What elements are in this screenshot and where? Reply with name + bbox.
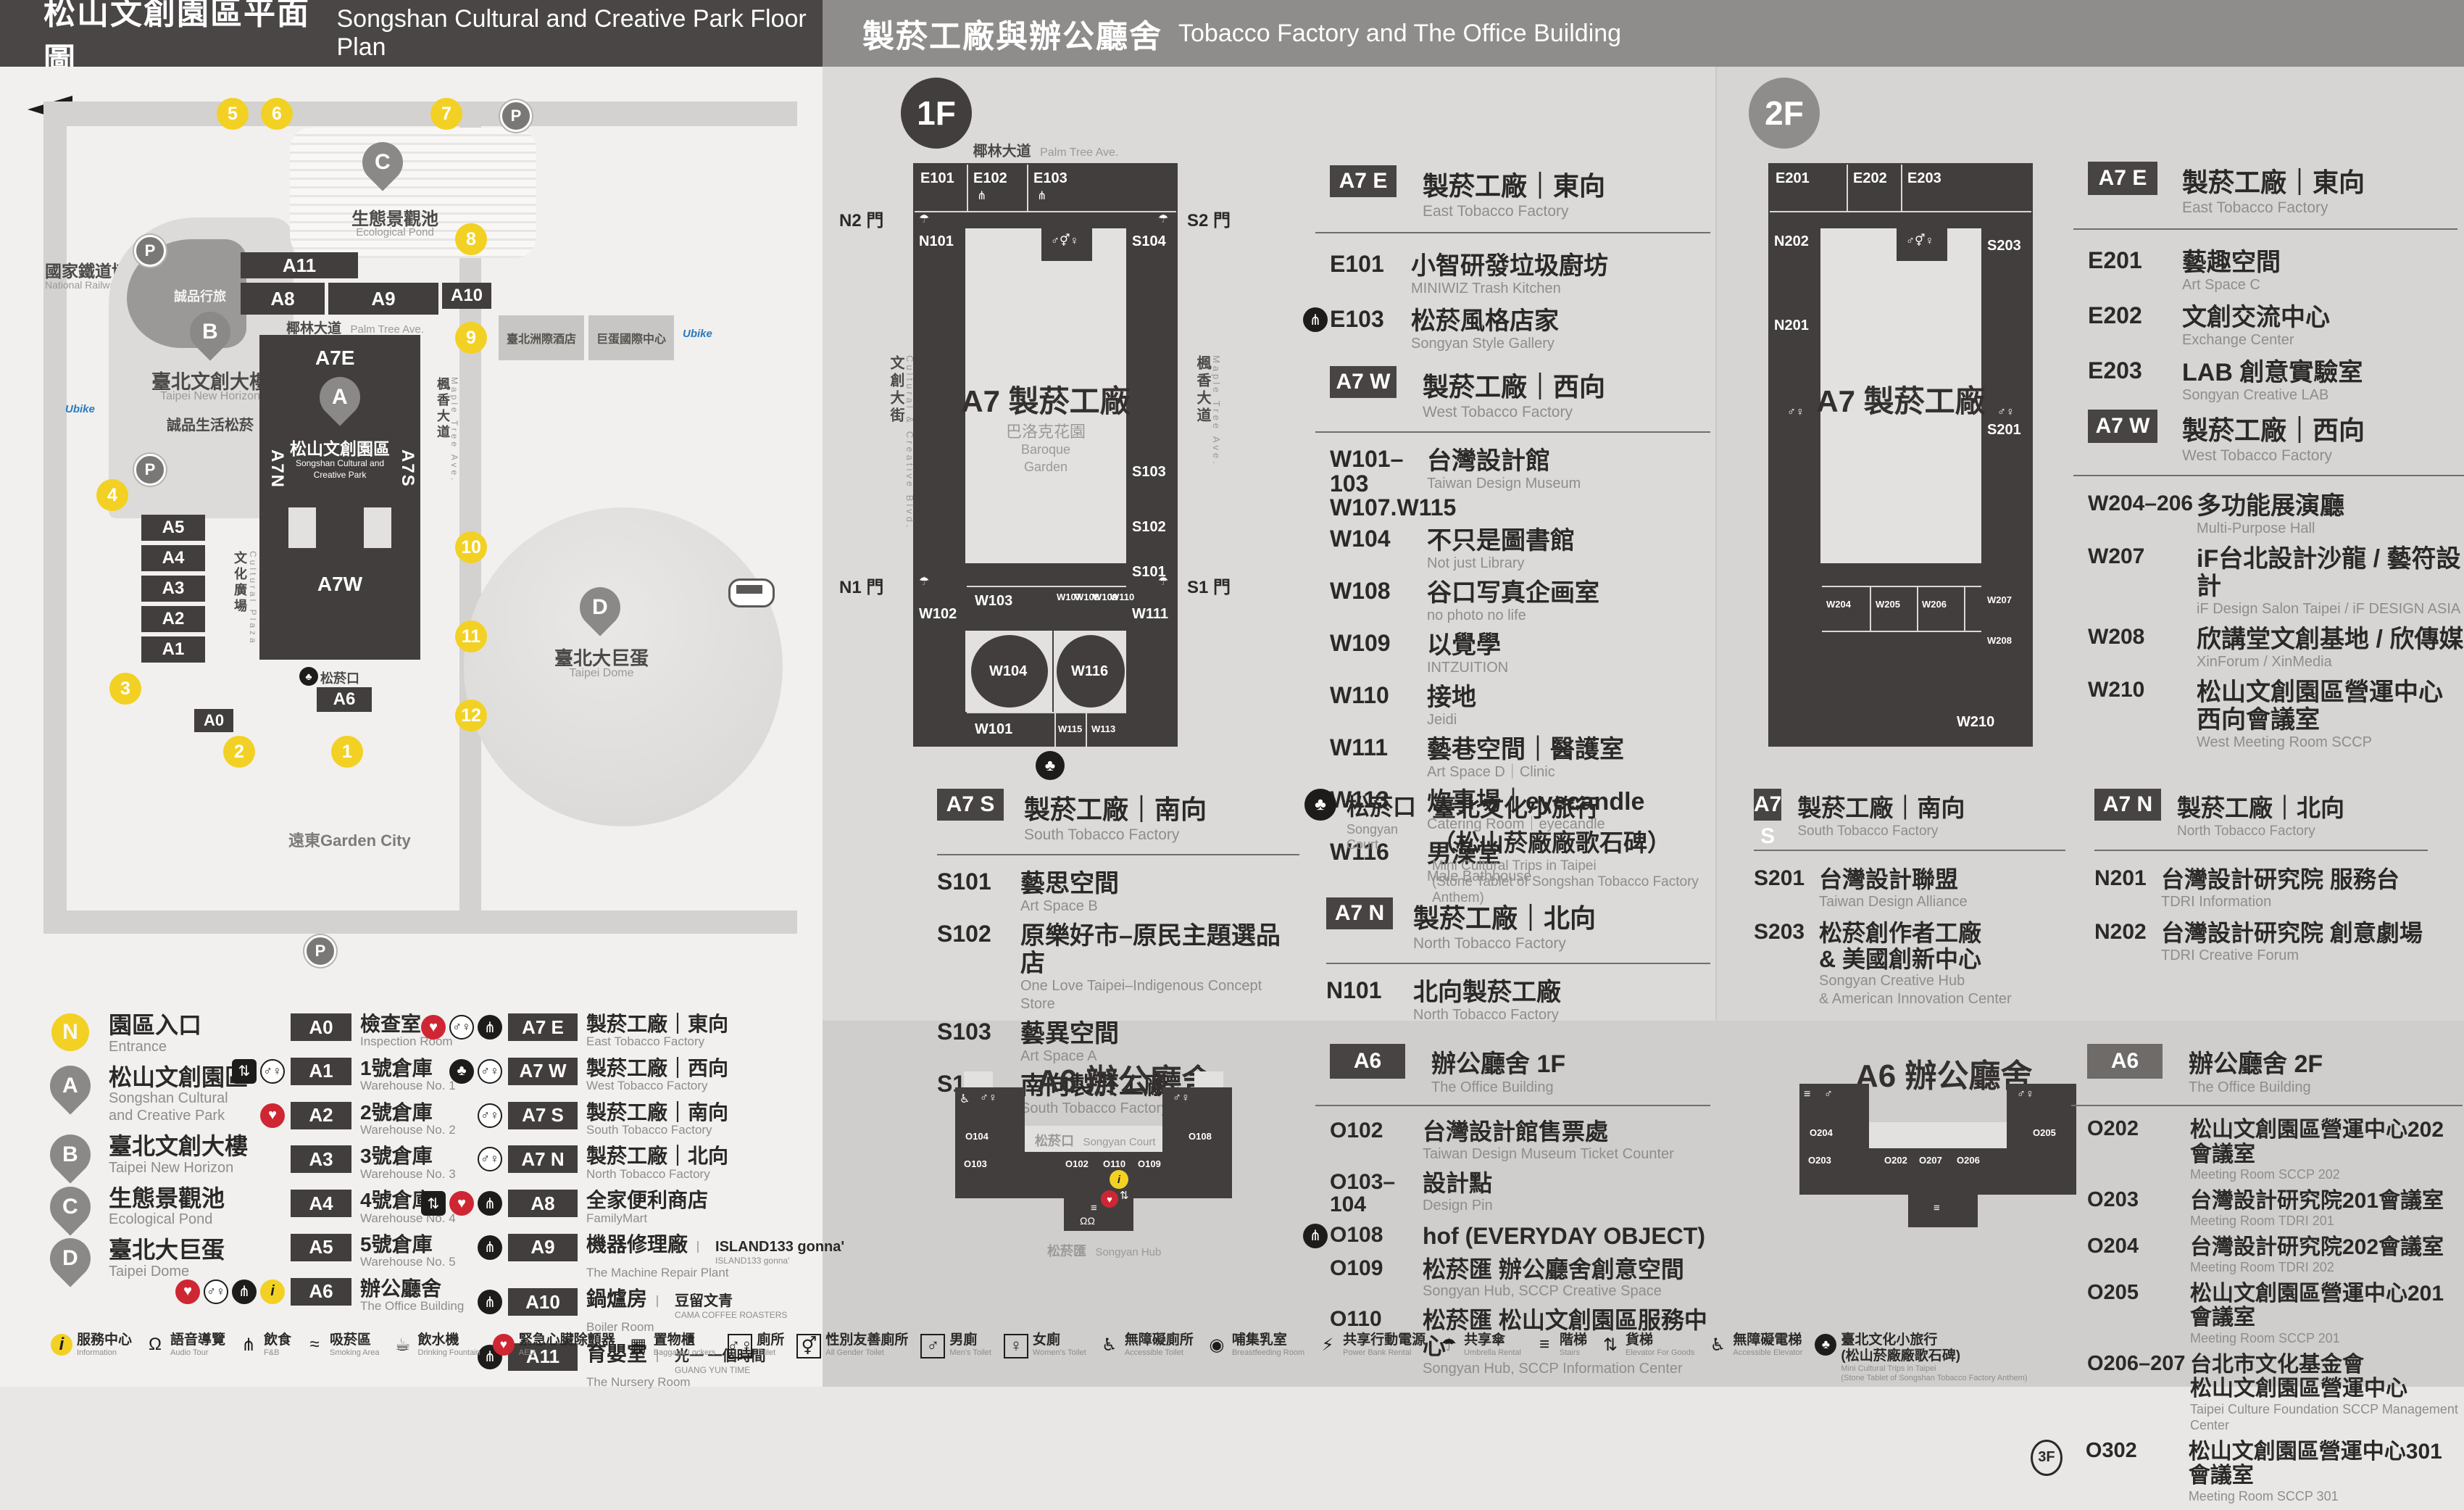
pin-marker: A [41,1057,99,1114]
header-right: 製菸工廠與辦公廳舍 Tobacco Factory and The Office… [823,0,2464,67]
room-sep [915,211,1176,212]
section-2f-a7s: A7 S 製菸工廠｜南向 South Tobacco Factory S201 … [1754,789,1931,1018]
room-listing: O109 松菸匯 辦公廳舍創意空間Songyan Hub, SCCP Creat… [1315,1257,1710,1301]
court-item-zh2: （松山菸廠廠歌石碑） [1432,824,1710,858]
room-listing: W109 以覺學INTZUITION [1315,631,1710,677]
footer-item: ♣ 臺北文化小旅行 (松山菸廠廠歌石碑) Mini Cultural Trips… [1815,1332,2027,1384]
legend-badge: A4 [291,1190,351,1217]
room-o204: O204 [1810,1127,1833,1138]
baggage-lockers-icon: ▦ [628,1334,649,1356]
badge-a7s-2f: A7 S [1754,789,1781,821]
toilet-icon: ♂♀ [1787,406,1805,419]
stop-7: 7 [430,98,462,130]
road-bottom [43,910,797,934]
breastfeeding-room-icon: ◉ [1206,1334,1228,1356]
footer-item: ♿ 無障礙電梯 Accessible Elevator [1707,1332,1802,1358]
court-item-zh1: 臺北文化小旅行 [1432,789,1710,824]
room-w103: W103 [975,593,1012,610]
legend-row-icons [185,1234,285,1235]
street-ccblvd-en: Cultural & Creative Blvd. [904,355,915,531]
room-e101: E101 [920,170,954,187]
room-listing: O203 台灣設計研究院201會議室Meeting Room TDRI 201 [2071,1189,2463,1229]
badge-a7s: A7 S [937,789,1004,821]
room-sep [967,586,1126,587]
footer-icon-legend: i 服務中心 Information Ω 語音導覽 Audio Tour ⋔ 飲… [51,1332,2413,1384]
room-s103: S103 [1132,464,1166,481]
footer-item: Ω 語音導覽 Audio Tour [144,1332,225,1358]
room-sep [1917,587,1918,631]
audio-tour-icon: ΩΩ [1080,1215,1095,1227]
gate-s1: S1 門 [1187,573,1231,598]
section-2f-a7e: A7 E 製菸工廠｜東向 East Tobacco Factory E201 藝… [2073,162,2457,414]
information-icon: i [260,1279,285,1304]
legend-badge: A2 [291,1102,351,1129]
office1f-title-zh: 辦公廳舍 1F [1431,1044,1565,1079]
sec-title-zh: 製菸工廠｜西向 [2182,410,2365,447]
map-courtyard-slit [288,507,316,548]
legend-row-icons [185,1013,285,1015]
room-sep [1027,165,1028,211]
street-ccblvd-zh: 文創大街 [886,355,907,425]
legend-badge: A1 [291,1058,351,1085]
parking-icon: P [134,235,166,267]
eslite-store-label: 誠品生活松菸 [167,413,254,434]
stairs-icon: ≡ [1804,1088,1810,1101]
umbrella-icon: ☂ [919,212,929,226]
court-item-en1: Mini Cultural Trips in Taipei [1432,858,1710,874]
room-listing: O102 台灣設計館售票處Taiwan Design Museum Ticket… [1315,1119,1710,1163]
cultural-plaza-label-en: Cultural Plaza [248,551,258,646]
footer-item: ⚡ 共享行動電源 Power Bank Rental [1317,1332,1425,1358]
songyan-court-icon: ♣ [1036,751,1065,780]
toilet-icon: ♂♀ [478,1059,502,1084]
legend-row-icons: ♣♂♀ [402,1058,502,1084]
toilet-icon: ♂♀ [2017,1088,2034,1101]
map-a-label-en1: Songshan Cultural and [296,458,384,468]
building-a6: A6 [317,687,372,712]
eslite-hotel-label: 誠品行旅 [174,286,226,305]
accessible-elevator-icon: ♿ [1707,1334,1728,1356]
header-left: 松山文創園區平面圖 Songshan Cultural and Creative… [0,0,823,67]
cultural-plaza-label: 文化廣場 [230,551,249,615]
building-a2: A2 [141,606,205,632]
room-sep [1870,587,1871,631]
footer-item: i 服務中心 Information [51,1332,132,1358]
aed-icon: ♥ [493,1334,515,1356]
office-2f-listing: A6 辦公廳舍 2F The Office Building O202 松山文創… [2071,1044,2463,1510]
songyan-court-icon: ♣ [1304,789,1336,821]
aed-icon: ♥ [449,1191,474,1216]
room-w101: W101 [975,721,1012,738]
badge-a7w-2f: A7 W [2088,410,2157,443]
room-w206: W206 [1922,599,1947,610]
footer-item: ▦ 置物櫃 Baggage Lockers [628,1332,716,1358]
map-a7w-label: A7W [317,573,362,596]
room-w204: W204 [1826,599,1851,610]
room-o109: O109 [1138,1158,1161,1169]
room-o203: O203 [1808,1155,1831,1166]
listing-icons: ⋔ [1299,307,1330,353]
footer-item: ☂ 共享傘 Umbrella Rental [1438,1332,1521,1358]
sec-title-en: North Tobacco Factory [1413,935,1566,952]
sec-title-en: East Tobacco Factory [1423,203,1569,220]
footer-item: ⇅ 貨梯 Elevator For Goods [1599,1332,1694,1358]
page-title-en: Songshan Cultural and Creative Park Floo… [337,5,823,62]
ubike-logo: Ubike [683,328,712,340]
listing-icons [1299,1119,1330,1163]
room-listing: E203 LAB 創意實驗室Songyan Creative LAB [2073,359,2457,405]
room-sep [1964,587,1965,631]
room-o110: O110 [1103,1158,1125,1169]
stairs-icon: ≡ [1533,1334,1555,1356]
umbrella-icon: ☂ [1158,212,1168,226]
room-w115: W115 [1058,723,1082,734]
section-1f-a7n: A7 N 製菸工廠｜北向 North Tobacco Factory N101 … [1326,897,1710,1034]
room-o205: O205 [2033,1127,2056,1138]
baroque-garden-en2: Garden [1024,460,1067,475]
baroque-garden-en1: Baroque [1021,442,1070,457]
room-o207: O207 [1919,1155,1942,1166]
legend-row-icons: ♥♂♀⋔ [402,1013,502,1040]
sec-title-zh: 製菸工廠｜北向 [2177,789,2344,824]
womens-toilet-icon: ♀ [1004,1334,1028,1358]
entrance-marker: N [51,1013,89,1051]
office1f-hub-label: 松菸匯 Songyan Hub [1047,1241,1161,1260]
office2f-plan-title: A6 辦公廳舍 [1855,1050,2032,1096]
room-sep [1086,713,1087,747]
aed-icon: ♥ [421,1015,446,1040]
intercontinental-hotel-box: 臺北洲際酒店 [499,315,584,360]
legend-badge: A5 [291,1234,351,1261]
room-listing: S102 原樂好市–原民主題選品店One Love Taipei–Indigen… [937,922,1299,1013]
footer-item: ♂♀ 廁所 Toilet [728,1332,784,1358]
building-a9: A9 [328,283,438,315]
all-gender-toilet-icon: ⚥ [796,1334,821,1358]
elevator-icon: ⇅ [421,1191,446,1216]
room-w205: W205 [1876,599,1900,610]
palm-tree-ave-label: 椰林大道 Palm Tree Ave. [286,318,424,337]
ubike-logo: Ubike [65,403,95,415]
sec-title-en: South Tobacco Factory [1024,826,1179,843]
room-w104: W104 [989,663,1027,680]
footer-item: ☕ 飲水機 Drinking Fountain [392,1332,480,1358]
gate-n1: N1 門 [839,573,883,598]
legend-row-icons: ⋔ [402,1288,502,1314]
listing-icons [1299,1171,1330,1216]
audio-tour-icon: Ω [144,1334,166,1356]
room-o202: O202 [1884,1155,1907,1166]
elevator-for-goods-icon: ⇅ [1599,1334,1621,1356]
room-s104: S104 [1132,233,1166,250]
fnb-icon: ⋔ [238,1334,259,1356]
aed-icon: ♥ [1101,1190,1118,1208]
room-listing: N101 北向製菸工廠North Tobacco Factory [1326,979,1710,1024]
legend-factory-row: ♂♀ A7 S 製菸工廠｜南向 South Tobacco Factory [402,1102,808,1138]
building-a0: A0 [194,709,233,732]
legend-row-icons: ⇅♥⋔ [402,1190,502,1216]
pond-label-en: Ecological Pond [356,226,434,238]
office1f-court-label: 松菸口 Songyan Court [1035,1131,1156,1150]
footer-item: ⋔ 飲食 F&B [238,1332,291,1358]
room-w102: W102 [919,606,957,623]
legend-badge: A7 S [508,1102,578,1129]
fnb-icon: ⋔ [1303,307,1328,332]
badge-a6-2f: A6 [2087,1044,2163,1079]
legend-factory-row: ⋔ A9 機器修理廠 ｜ISLAND133 gonna'ISLAND133 go… [402,1234,808,1280]
stairs-icon: ≡ [1091,1202,1097,1214]
power-bank-rental-icon: ⚡ [1317,1334,1339,1356]
office2f-notch [1869,1122,2007,1148]
legend-badge: A7 E [508,1013,578,1041]
room-listing: S203 松菸創作者工廠& 美國創新中心Songyan Creative Hub… [1754,921,1931,1009]
map-a7n-label: A7N [267,449,287,489]
fnb-icon: ⋔ [478,1015,502,1040]
room-sep [1901,165,1902,211]
toilet-icon: ♂♀ [478,1103,502,1128]
fnb-icon: ⋔ [478,1290,502,1314]
room-o206: O206 [1957,1155,1980,1166]
badge-a6-1f: A6 [1330,1044,1405,1079]
map-a7s-label: A7S [397,449,417,488]
legend-factory-row: ♥♂♀⋔ A7 E 製菸工廠｜東向 East Tobacco Factory [402,1013,808,1050]
legend-row-icons: ⇅♂♀ [185,1058,285,1084]
toilet-icon: ♂♀ [1997,406,2015,419]
badge-a7e-2f: A7 E [2088,162,2157,195]
map-courtyard-slit [364,507,391,548]
map-a7e-label: A7E [315,347,354,370]
office2f-stem [1908,1195,1978,1227]
b-label-en: Taipei New Horizon [160,390,260,403]
footer-item: ≈ 吸菸區 Smoking Area [304,1332,379,1358]
fnb-icon: ⋔ [232,1279,257,1304]
stop-12: 12 [455,700,487,731]
room-o103: O103 [964,1158,987,1169]
legend-row-icons [185,1190,285,1191]
room-listing: N201 台灣設計研究院 服務台TDRI Information [2094,867,2457,911]
room-w111: W111 [1132,606,1168,623]
room-listing: E101 小智研發垃圾廚坊MINIWIZ Trash Kitchen [1315,252,1710,298]
sec-title-zh: 製菸工廠｜東向 [2182,162,2365,199]
legend-row-icons: ♂♀ [402,1145,502,1171]
room-s203: S203 [1987,238,2021,254]
room-listing: ⋔ E103 松菸風格店家Songyan Style Gallery [1315,307,1710,353]
room-listing: W108 谷口写真企画室no photo no life [1315,579,1710,625]
office2f-title-zh: 辦公廳舍 2F [2189,1044,2323,1079]
room-listing: O202 松山文創園區營運中心202會議室Meeting Room SCCP 2… [2071,1118,2463,1183]
stop-10: 10 [455,531,487,563]
stop-4: 4 [96,479,128,511]
footer-item: ♥ 緊急心臟除顫器 AED [493,1332,615,1358]
room-s102: S102 [1132,519,1166,536]
sec-title-en: North Tobacco Factory [2177,824,2315,839]
fnb-icon: ⋔ [1303,1224,1328,1248]
toilet-icon: ♂♀ [1173,1092,1190,1105]
fnb-icon: ⋔ [977,188,986,203]
room-n101: N101 [919,233,954,250]
stop-8: 8 [455,223,487,255]
ecological-pond-shape [290,128,536,258]
map-a-label-zh: 松山文創園區 [290,435,390,460]
toilet-icon: ♂♀ [980,1092,997,1105]
building-a5: A5 [141,515,205,541]
legend-badge: A9 [508,1234,578,1261]
panel-divider [1715,67,1717,1021]
street-palm-label: 椰林大道 Palm Tree Ave. [973,139,1119,160]
building-a11: A11 [241,252,358,278]
floor1-badge: 1F [901,78,972,149]
room-listing: N202 台灣設計研究院 創意劇場TDRI Creative Forum [2094,921,2457,965]
sec-title-zh: 製菸工廠｜東向 [1423,165,1605,203]
building-a3: A3 [141,576,205,602]
street-maple-en: Maple Tree Ave. [1211,355,1222,467]
office1f-title-en: The Office Building [1431,1079,1554,1095]
badge-a7e: A7 E [1330,165,1397,197]
gate-n2: N2 門 [839,206,883,231]
fnb-icon: ⋔ [1037,188,1046,203]
mens-toilet-icon: ♂ [920,1334,945,1358]
elevator-icon: ⇅ [232,1059,257,1084]
room-listing: S201 台灣設計聯盟Taiwan Design Alliance [1754,867,1931,911]
court-icon: ♣ [449,1059,474,1084]
gate-s2: S2 門 [1187,206,1231,231]
listing-icons [1299,252,1330,298]
stop-1: 1 [331,736,363,768]
room-w207: W207 [1987,594,2012,605]
office1f-stem [1064,1198,1133,1231]
room-w208: W208 [1987,635,2012,646]
street-maple-zh: 楓香大道 [1192,355,1213,425]
stair-slab [964,1071,993,1089]
songyan-court-icon: ♣ [299,667,318,686]
building-a8: A8 [241,283,325,315]
room-n202: N202 [1774,233,1809,250]
room-listing: W210 松山文創園區營運中心西向會議室West Meeting Room SC… [2073,679,2464,752]
dome-label-en: Taipei Dome [570,667,634,680]
room-listing: O204 台灣設計研究院202會議室Meeting Room TDRI 202 [2071,1235,2463,1276]
room-sep [1054,713,1056,747]
badge-a7w: A7 W [1330,366,1397,398]
court-zh: 松菸口 [1347,789,1432,822]
map-court-label: 松菸口 [320,668,359,687]
toilet-icon: ♂♀ [478,1147,502,1171]
footer-item: ♿ 無障礙廁所 Accessible Toilet [1099,1332,1194,1358]
sec-title-zh: 製菸工廠｜南向 [1024,789,1207,826]
legend-factory-row: ⇅♥⋔ A8 全家便利商店 FamilyMart [402,1190,808,1226]
stair-slab [1194,1071,1223,1089]
office2f-title-en: The Office Building [2189,1079,2311,1095]
maple-ave-label-en: Maple Tree Ave. [449,377,459,484]
sec-title-zh: 製菸工廠｜西向 [1423,366,1605,404]
stop-6: 6 [261,98,293,130]
legend-badge: A6 [291,1278,351,1306]
room-sep [1822,631,1981,632]
room-e203: E203 [1907,170,1941,187]
parking-icon: P [500,100,532,132]
floor-prefix-badge: 3F [2031,1440,2063,1476]
mini-cultural-trips-icon: ♣ [1815,1334,1836,1356]
toilet-icon: ♂♀ [449,1015,474,1040]
room-sep [1770,211,2031,212]
badge-a7n-2f: A7 N [2094,789,2161,821]
legend-factory-row: ⋔ A10 鍋爐房 ｜豆留文青CAMA COFFEE ROASTERS Boil… [402,1288,808,1335]
umbrella-rental-icon: ☂ [1438,1334,1460,1356]
fnb-icon: ⋔ [478,1235,502,1260]
accessible-toilet-icon: ♿ [1099,1334,1120,1356]
baroque-garden-zh: 巴洛克花園 [1006,419,1086,442]
legend-row-icons: ♥ [185,1102,285,1128]
room-sep [967,712,1126,713]
room-listing: 3F O302 松山文創園區營運中心301會議室Meeting Room SCC… [2071,1440,2463,1505]
map-a-label-en2: Creative Park [314,470,367,480]
road-top [43,101,797,126]
legend-badge: A7 N [508,1145,578,1173]
footer-item: ◉ 哺集乳室 Breastfeeding Room [1206,1332,1304,1358]
section-title-en: Tobacco Factory and The Office Building [1178,20,1621,48]
section-2f-a7n: A7 N 製菸工廠｜北向 North Tobacco Factory N201 … [2094,789,2457,974]
room-listing: W207 iF台北設計沙龍 / 藝符設計iF Design Salon Taip… [2073,545,2464,618]
plan1-center-title: A7 製菸工廠 [961,377,1130,421]
legend-factory-row: ♂♀ A7 N 製菸工廠｜北向 North Tobacco Factory [402,1145,808,1182]
sec-title-zh: 製菸工廠｜北向 [1413,897,1596,935]
stairs-icon: ≡ [1934,1202,1940,1214]
road-left [43,126,67,910]
stop-5: 5 [217,98,249,130]
toilet-icon: ♂ [1824,1088,1833,1101]
information-icon: i [51,1334,72,1356]
legend-row-icons: ⋔ [402,1234,502,1260]
listing-icons [1299,1257,1330,1301]
bus-stop-icon [728,578,775,607]
court-en: Songyan Court [1347,822,1398,852]
room-listing: W111 藝巷空間｜醫護室Art Space D｜Clinic [1315,736,1710,781]
section-2f-a7w: A7 W 製菸工廠｜西向 West Tobacco Factory W204–2… [2073,410,2464,759]
legend-badge: A3 [291,1145,351,1173]
legend-badge: A7 W [508,1058,578,1085]
stop-11: 11 [455,621,487,652]
room-listing: W104 不只是圖書館Not just Library [1315,527,1710,573]
legend-badge: A8 [508,1190,578,1217]
building-a10: A10 [442,283,491,309]
room-w110: W110 [1110,592,1134,602]
room-listing: S101 藝思空間Art Space B [937,870,1299,916]
pin-marker: B [41,1127,99,1184]
parking-icon: P [134,454,166,486]
legend-row-icons: ♂♀ [402,1102,502,1128]
legend-row-icons [185,1145,285,1147]
listing-icons: ⋔ [1299,1224,1330,1250]
aed-icon: ♥ [260,1103,285,1128]
room-w210: W210 [1957,714,1994,731]
room-e201: E201 [1776,170,1810,187]
stop-3: 3 [109,673,141,705]
room-e102: E102 [973,170,1007,187]
umbrella-icon: ☂ [1158,574,1168,589]
legend-badge: A0 [291,1013,351,1041]
information-icon: i [1110,1170,1128,1189]
accessible-icon: ♿ [960,1092,970,1106]
sec-title-en: East Tobacco Factory [2182,199,2328,216]
stop-9: 9 [455,322,487,354]
legend-factory-row: ♣♂♀ A7 W 製菸工廠｜西向 West Tobacco Factory [402,1058,808,1094]
toilet-icon: ♂♀ [204,1279,228,1304]
building-a4: A4 [141,545,205,571]
umbrella-icon: ☂ [919,574,929,589]
footer-item: ♀ 女廁 Women's Toilet [1004,1332,1086,1358]
legend-badge: A10 [508,1288,578,1316]
room-w113: W113 [1091,723,1115,734]
footer-item: ⚥ 性別友善廁所 All Gender Toilet [796,1332,908,1358]
room-listing: W204–206 多功能展演廳Multi-Purpose Hall [2073,492,2464,538]
